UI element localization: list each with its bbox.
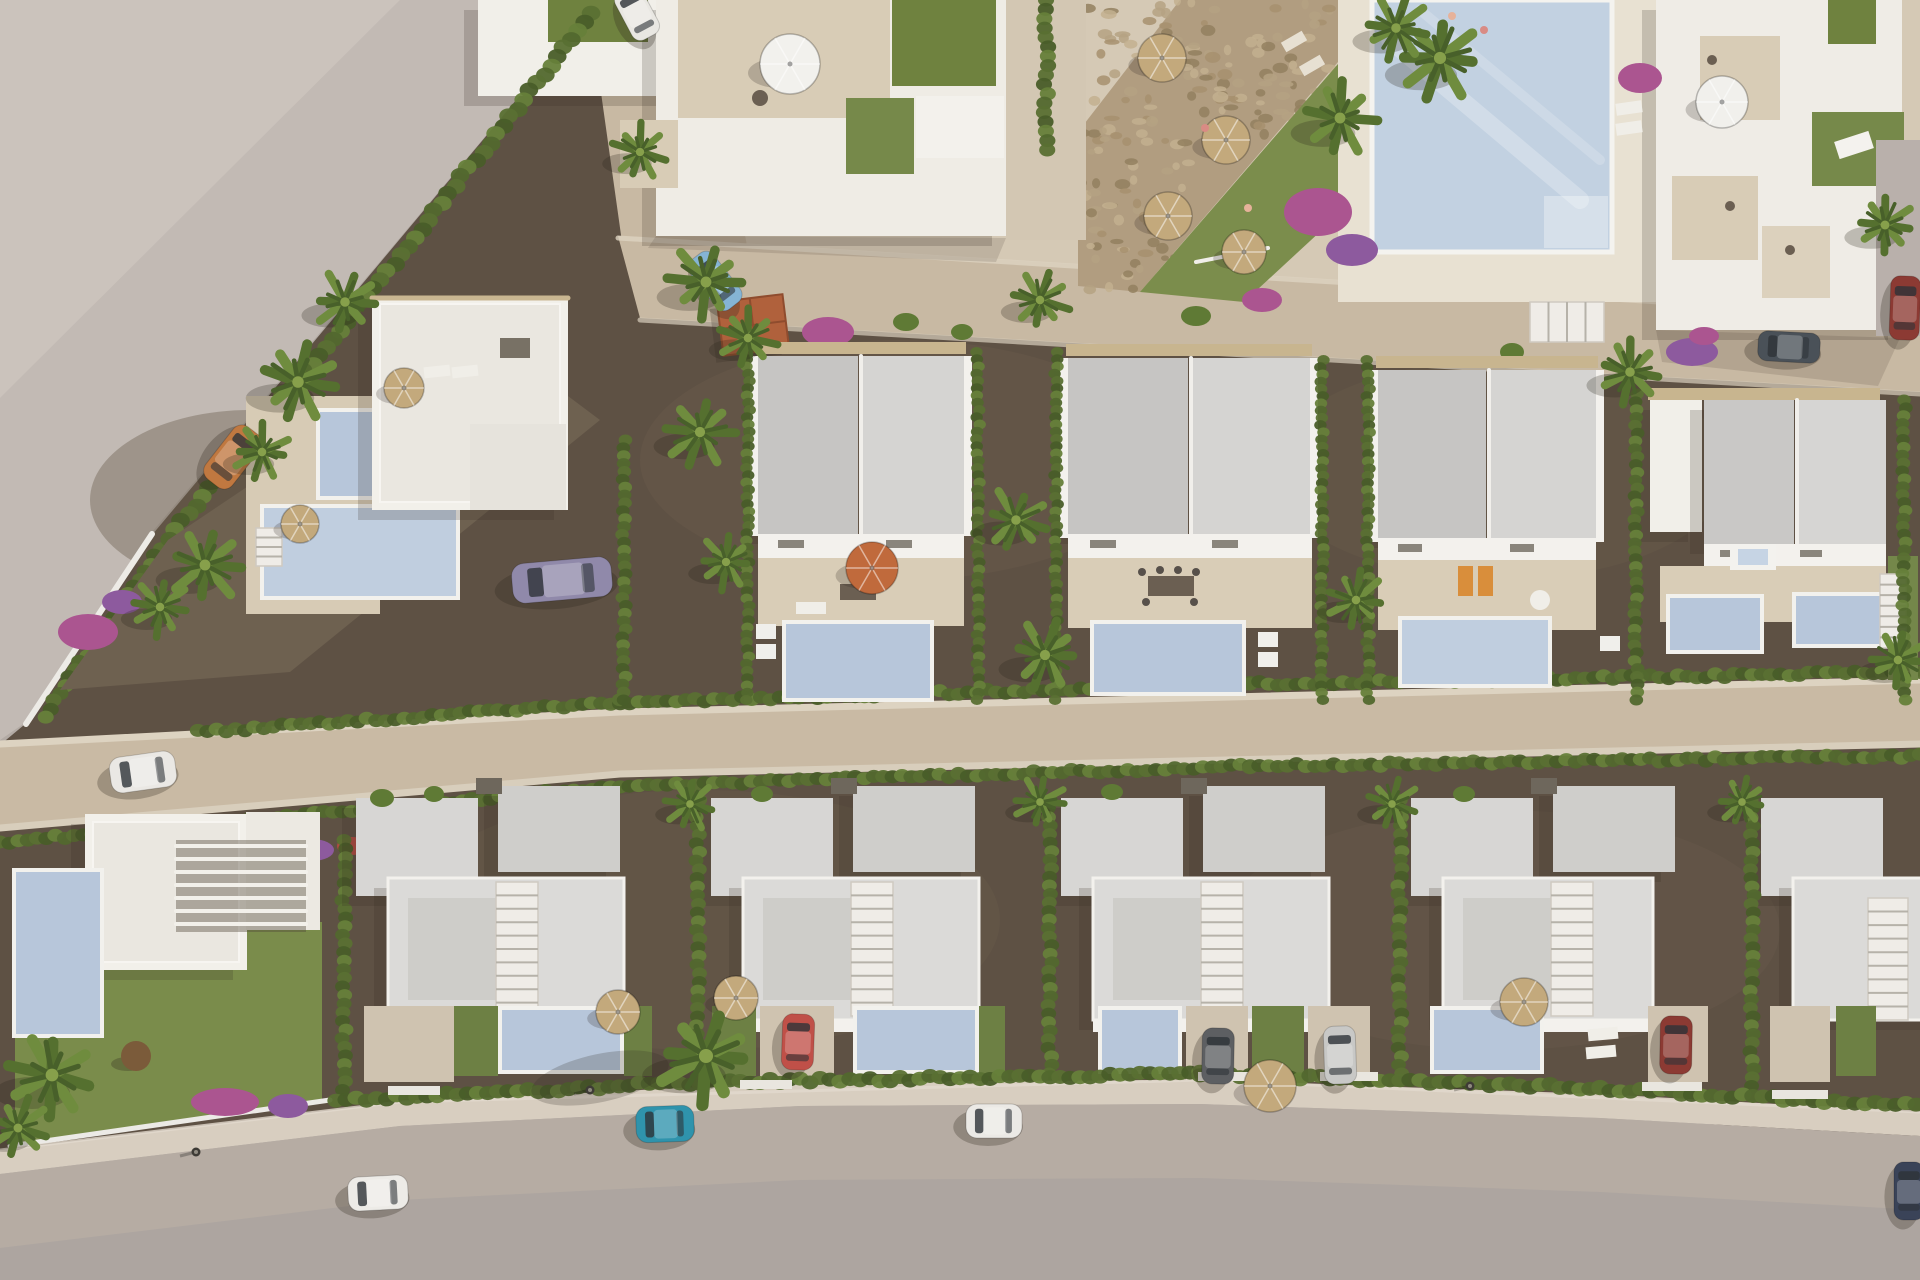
roof-slab (1068, 358, 1188, 534)
chair (1156, 566, 1164, 574)
cobblestones (1258, 81, 1272, 87)
furniture (1725, 201, 1735, 211)
bougainvillea (268, 1094, 308, 1118)
roof-slab (862, 356, 964, 534)
cobblestones (1199, 107, 1210, 118)
bush (751, 786, 773, 802)
palm-tree (46, 1069, 59, 1082)
ac-unit (1258, 632, 1278, 647)
cobblestones (1161, 255, 1169, 261)
garage-roof (470, 424, 566, 510)
window (1510, 544, 1534, 552)
cobblestones (1161, 168, 1173, 175)
ac-unit (756, 624, 776, 639)
cobblestones (1209, 6, 1221, 14)
table (1530, 590, 1550, 610)
roof-lawn (1828, 0, 1876, 44)
sun-umbrella (298, 522, 303, 527)
cobblestones (1132, 118, 1147, 125)
cobblestones (1094, 147, 1103, 154)
bougainvillea (1326, 234, 1378, 266)
cobblestones (1188, 42, 1200, 49)
bougainvillea (1689, 327, 1719, 345)
cobblestones (1120, 188, 1132, 193)
courtyard (1672, 176, 1758, 260)
roof-parasol (788, 62, 793, 67)
palm-tree (340, 297, 350, 307)
roof-hatch (500, 338, 530, 358)
gate (388, 1086, 440, 1095)
cobblestones (1136, 265, 1144, 273)
sun-umbrella (616, 1010, 621, 1015)
roof-slab (758, 356, 858, 534)
cobblestones (1279, 81, 1293, 87)
roof-hatch (1531, 778, 1557, 794)
cobblestones (1100, 136, 1110, 142)
cobblestones (1120, 247, 1129, 253)
cobblestones (1309, 19, 1320, 28)
cobblestones (1110, 239, 1123, 244)
lot-hedge (617, 695, 631, 706)
cobblestones (1188, 50, 1202, 56)
cobblestones (1269, 4, 1281, 12)
cobblestones (1322, 5, 1336, 13)
cobblestones (1104, 116, 1120, 121)
cobblestones (1199, 75, 1212, 81)
parapet-trim (1648, 388, 1880, 400)
furniture (1707, 55, 1717, 65)
cobblestones (1177, 139, 1192, 146)
palm-tree (1738, 798, 1746, 806)
roof-upper (853, 786, 975, 872)
ext-stairs (1868, 898, 1908, 1020)
cobblestones (1096, 49, 1105, 59)
bush (1101, 784, 1123, 800)
bush (424, 786, 444, 802)
bougainvillea (191, 1088, 259, 1116)
lot-hedge (1363, 695, 1375, 705)
bougainvillea (1284, 188, 1352, 236)
bougainvillea (1242, 288, 1282, 312)
ac-unit (1600, 636, 1620, 651)
roof-upper (498, 786, 620, 872)
pool (1668, 596, 1762, 652)
chair (1138, 568, 1146, 576)
sun-umbrella (1268, 1084, 1273, 1089)
scene-canvas (0, 0, 1920, 1280)
palm-tree (1434, 52, 1446, 64)
window (886, 540, 912, 548)
furniture (1785, 245, 1795, 255)
roof-lawn (846, 98, 914, 174)
cobblestones (1214, 86, 1227, 91)
cobblestones (1224, 104, 1239, 110)
cobblestones (1101, 10, 1117, 19)
orange-parasol (870, 566, 875, 571)
street-lamp (1468, 1084, 1472, 1088)
cobblestones (1136, 129, 1148, 138)
wall-hedge (38, 711, 54, 724)
cobblestones (1124, 40, 1137, 49)
lot-hedge (1049, 695, 1061, 705)
cobblestones (1087, 149, 1095, 155)
cobblestones (1289, 60, 1297, 69)
garden-table (121, 1041, 151, 1071)
cobblestones (1124, 87, 1138, 97)
courtyard (1762, 226, 1830, 298)
cobblestones (1087, 129, 1101, 137)
roof-hatch (1181, 778, 1207, 794)
hedge (1039, 144, 1055, 157)
spa-water (1738, 549, 1768, 565)
cobblestones (1254, 109, 1261, 115)
street-lamp (588, 1088, 592, 1092)
cobblestones (1155, 1, 1166, 11)
roof-slab (1378, 370, 1486, 538)
window (1212, 540, 1238, 548)
swimmer (1448, 12, 1456, 20)
gate (1772, 1090, 1828, 1099)
pool (1400, 618, 1550, 686)
bougainvillea (58, 614, 118, 650)
cobblestones (1263, 74, 1277, 82)
cobblestones (1178, 184, 1186, 192)
lot-hedge (971, 695, 983, 705)
lot-hedge (1899, 695, 1913, 706)
roof-slab (1192, 358, 1310, 534)
cobblestones (1122, 137, 1131, 146)
roof-lawn (892, 0, 996, 86)
cobblestones (1272, 33, 1282, 42)
cobblestones (1156, 243, 1168, 254)
palm-tree (200, 560, 211, 571)
street-lamp (194, 1150, 198, 1154)
cobblestones (1144, 105, 1157, 110)
cobblestones (1205, 52, 1220, 63)
pool (14, 870, 102, 1036)
cobblestones (1309, 11, 1321, 20)
palm-tree (722, 558, 730, 566)
parapet-trim (1066, 344, 1312, 356)
palm-tree-overhang (699, 1049, 713, 1063)
cobblestones (1145, 94, 1152, 103)
bush (1181, 306, 1211, 326)
palm-tree (258, 448, 267, 457)
cobblestones (1224, 45, 1232, 56)
parapet-trim (756, 342, 966, 354)
palm-tree (1388, 800, 1396, 808)
cobblestones (1217, 69, 1232, 80)
aerial-render: Aerial 3D render of a white villa reside… (0, 0, 1920, 1280)
sun-umbrella (734, 996, 739, 1001)
pool (784, 622, 932, 700)
chair (1192, 568, 1200, 576)
cobblestones (1225, 62, 1232, 67)
roof-slab (1490, 370, 1596, 538)
palm-tree (1036, 296, 1045, 305)
cobblestones (1141, 137, 1153, 145)
dining-table (1148, 576, 1194, 596)
cobblestones (1123, 270, 1133, 277)
cobblestones (1086, 208, 1097, 217)
cobblestones (1187, 91, 1196, 100)
cobblestones (1200, 68, 1209, 75)
pool (1092, 622, 1244, 694)
window (1090, 540, 1116, 548)
bush (1453, 786, 1475, 802)
cobblestones (1097, 75, 1110, 85)
palm-tree (1352, 596, 1361, 605)
cobblestones (1128, 285, 1138, 293)
cobblestones (1089, 96, 1101, 106)
lawn-strip (454, 1006, 498, 1076)
roof-table (752, 90, 768, 106)
cobblestones (1130, 175, 1137, 184)
window (1398, 544, 1422, 552)
palm-tree (1894, 656, 1903, 665)
cobblestones (1276, 92, 1290, 100)
pool (855, 1008, 977, 1072)
roof-slab (1798, 400, 1886, 544)
roof-hatch (831, 778, 857, 794)
palm-tree (14, 1124, 23, 1133)
palm-tree (744, 334, 753, 343)
cobblestones (1138, 249, 1154, 257)
bush (893, 313, 919, 331)
top-right-building (1618, 0, 1920, 386)
cobblestones (1115, 179, 1130, 189)
cobblestones (1182, 159, 1195, 166)
cobblestones (1261, 42, 1275, 51)
lot-hedge (740, 695, 752, 705)
cobblestones (1110, 132, 1122, 139)
roof-slab (1704, 400, 1794, 544)
swimmer (1480, 26, 1488, 34)
chair (1142, 598, 1150, 606)
palm-tree (636, 148, 644, 156)
cobblestones (1121, 97, 1130, 103)
window (1800, 550, 1822, 557)
roof-hatch (476, 778, 502, 794)
palm-tree (1881, 221, 1890, 230)
cobblestones (1097, 231, 1107, 238)
cobblestones (1232, 79, 1244, 88)
cobblestones (1087, 189, 1101, 197)
person (1244, 204, 1252, 212)
cobblestones (1125, 158, 1138, 165)
sun-umbrella (1242, 250, 1247, 255)
pool (1100, 1008, 1180, 1072)
cobblestones (1161, 138, 1169, 144)
chair (1190, 598, 1198, 606)
palm-tree (686, 800, 694, 808)
driveway (364, 1006, 454, 1082)
cobblestones (1092, 178, 1100, 188)
cobblestones (1245, 37, 1257, 48)
roof-upper (1553, 786, 1675, 872)
cobblestones (1190, 69, 1199, 79)
bougainvillea (1618, 63, 1662, 93)
cobblestones (1102, 202, 1118, 209)
lawn-strip (1836, 1006, 1876, 1076)
lawn-strip (979, 1006, 1005, 1076)
cobblestones (1159, 22, 1172, 29)
cobblestones (1104, 39, 1119, 45)
cobblestones (1115, 31, 1131, 37)
cobblestones (1105, 282, 1113, 292)
pool (1794, 594, 1890, 646)
sun-umbrella (1160, 56, 1165, 61)
ac-unit (1258, 652, 1278, 667)
cobblestones (1201, 25, 1216, 36)
palm-tree (1036, 798, 1044, 806)
palm-tree (1335, 113, 1346, 124)
cobblestones (1133, 199, 1141, 209)
cobblestones (1143, 17, 1157, 25)
cobblestones (1083, 285, 1096, 294)
palm-tree (1625, 367, 1635, 377)
cobblestones (1109, 69, 1120, 78)
roof-upper (1203, 786, 1325, 872)
orange-lounger (1478, 566, 1493, 596)
cobblestones (1259, 129, 1269, 140)
chair (1174, 566, 1182, 574)
cobblestones (1212, 92, 1228, 103)
ac-unit (756, 644, 776, 659)
parapet-trim (1376, 356, 1598, 368)
palm-tree (695, 427, 705, 437)
cobblestones (1256, 89, 1266, 96)
gate (1642, 1082, 1702, 1091)
cobblestones (1192, 86, 1207, 93)
lot-hedge (1317, 695, 1329, 705)
cobblestones (1099, 127, 1107, 134)
bush (951, 324, 973, 340)
cobblestones (1256, 100, 1265, 105)
sun-umbrella (1522, 1000, 1527, 1005)
palm-tree (292, 376, 304, 388)
palm-tree (701, 277, 712, 288)
gate (740, 1080, 792, 1089)
sun-umbrella (1166, 214, 1171, 219)
lot-hedge (1630, 695, 1644, 706)
cobblestones (1273, 63, 1288, 73)
cobblestones (1086, 243, 1094, 249)
driveway (1770, 1006, 1830, 1082)
cobblestones (1273, 109, 1289, 115)
sun-umbrella (402, 386, 407, 391)
sun-umbrella (1224, 138, 1229, 143)
bush (370, 789, 394, 807)
lounger (796, 602, 826, 614)
cobblestones (1258, 114, 1273, 123)
cobblestones (1114, 215, 1124, 226)
palm-tree (1391, 23, 1401, 33)
palm-tree (1011, 515, 1021, 525)
cobblestones (1091, 254, 1100, 263)
person (1201, 124, 1209, 132)
palm-tree (1040, 650, 1050, 660)
orange-lounger (1458, 566, 1473, 596)
roof-volume (916, 96, 1004, 158)
palm-tree (156, 603, 165, 612)
roof-parasol (1720, 100, 1725, 105)
window (778, 540, 804, 548)
cobblestones (1146, 116, 1158, 127)
cobblestones (1172, 162, 1180, 170)
